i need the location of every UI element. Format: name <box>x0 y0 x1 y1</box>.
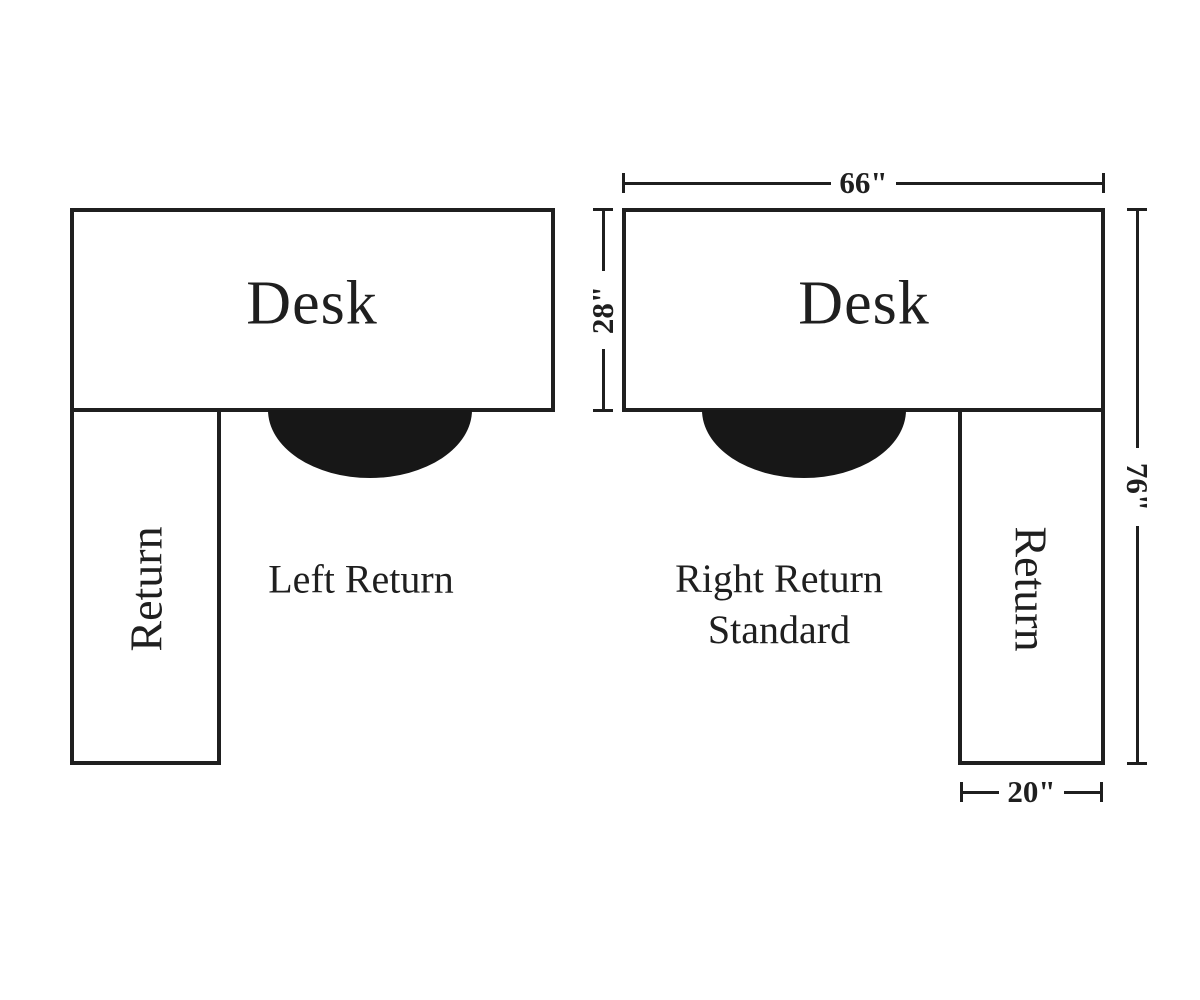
dimension-tick <box>1127 762 1147 765</box>
dimension-line <box>896 182 1102 185</box>
left-diagram-caption: Left Return <box>268 554 454 605</box>
dimension-overall-depth: 76" <box>1127 208 1147 765</box>
chair-icon <box>702 410 906 478</box>
dimension-line <box>1136 211 1139 448</box>
left-return-label: Return <box>120 526 173 651</box>
dimension-overall-depth-label: 76" <box>1119 462 1155 510</box>
right-diagram-caption-line2: Standard <box>675 604 883 655</box>
dimension-desk-depth: 28" <box>593 208 613 412</box>
dimension-line <box>1136 526 1139 763</box>
dimension-desk-width-label: 66" <box>831 173 895 193</box>
chair-icon <box>268 410 472 478</box>
dimension-desk-width: 66" <box>622 173 1105 193</box>
dimension-line <box>625 182 831 185</box>
dimension-line <box>1064 791 1100 794</box>
desk-configuration-diagram: Desk Return Left Return Desk Return Righ… <box>0 0 1200 1000</box>
dimension-line <box>602 349 605 409</box>
dimension-return-width: 20" <box>960 782 1103 802</box>
right-diagram-caption: Right Return Standard <box>675 553 883 655</box>
dimension-tick <box>1100 782 1103 802</box>
right-desk-label: Desk <box>798 269 929 340</box>
dimension-desk-depth-label: 28" <box>585 286 621 334</box>
dimension-return-width-label: 20" <box>999 782 1063 802</box>
left-desk-label: Desk <box>246 269 377 340</box>
dimension-tick <box>1102 173 1105 193</box>
dimension-tick <box>593 409 613 412</box>
right-return-label: Return <box>1005 526 1058 651</box>
dimension-line <box>963 791 999 794</box>
dimension-line <box>602 211 605 271</box>
right-diagram-caption-line1: Right Return <box>675 553 883 604</box>
